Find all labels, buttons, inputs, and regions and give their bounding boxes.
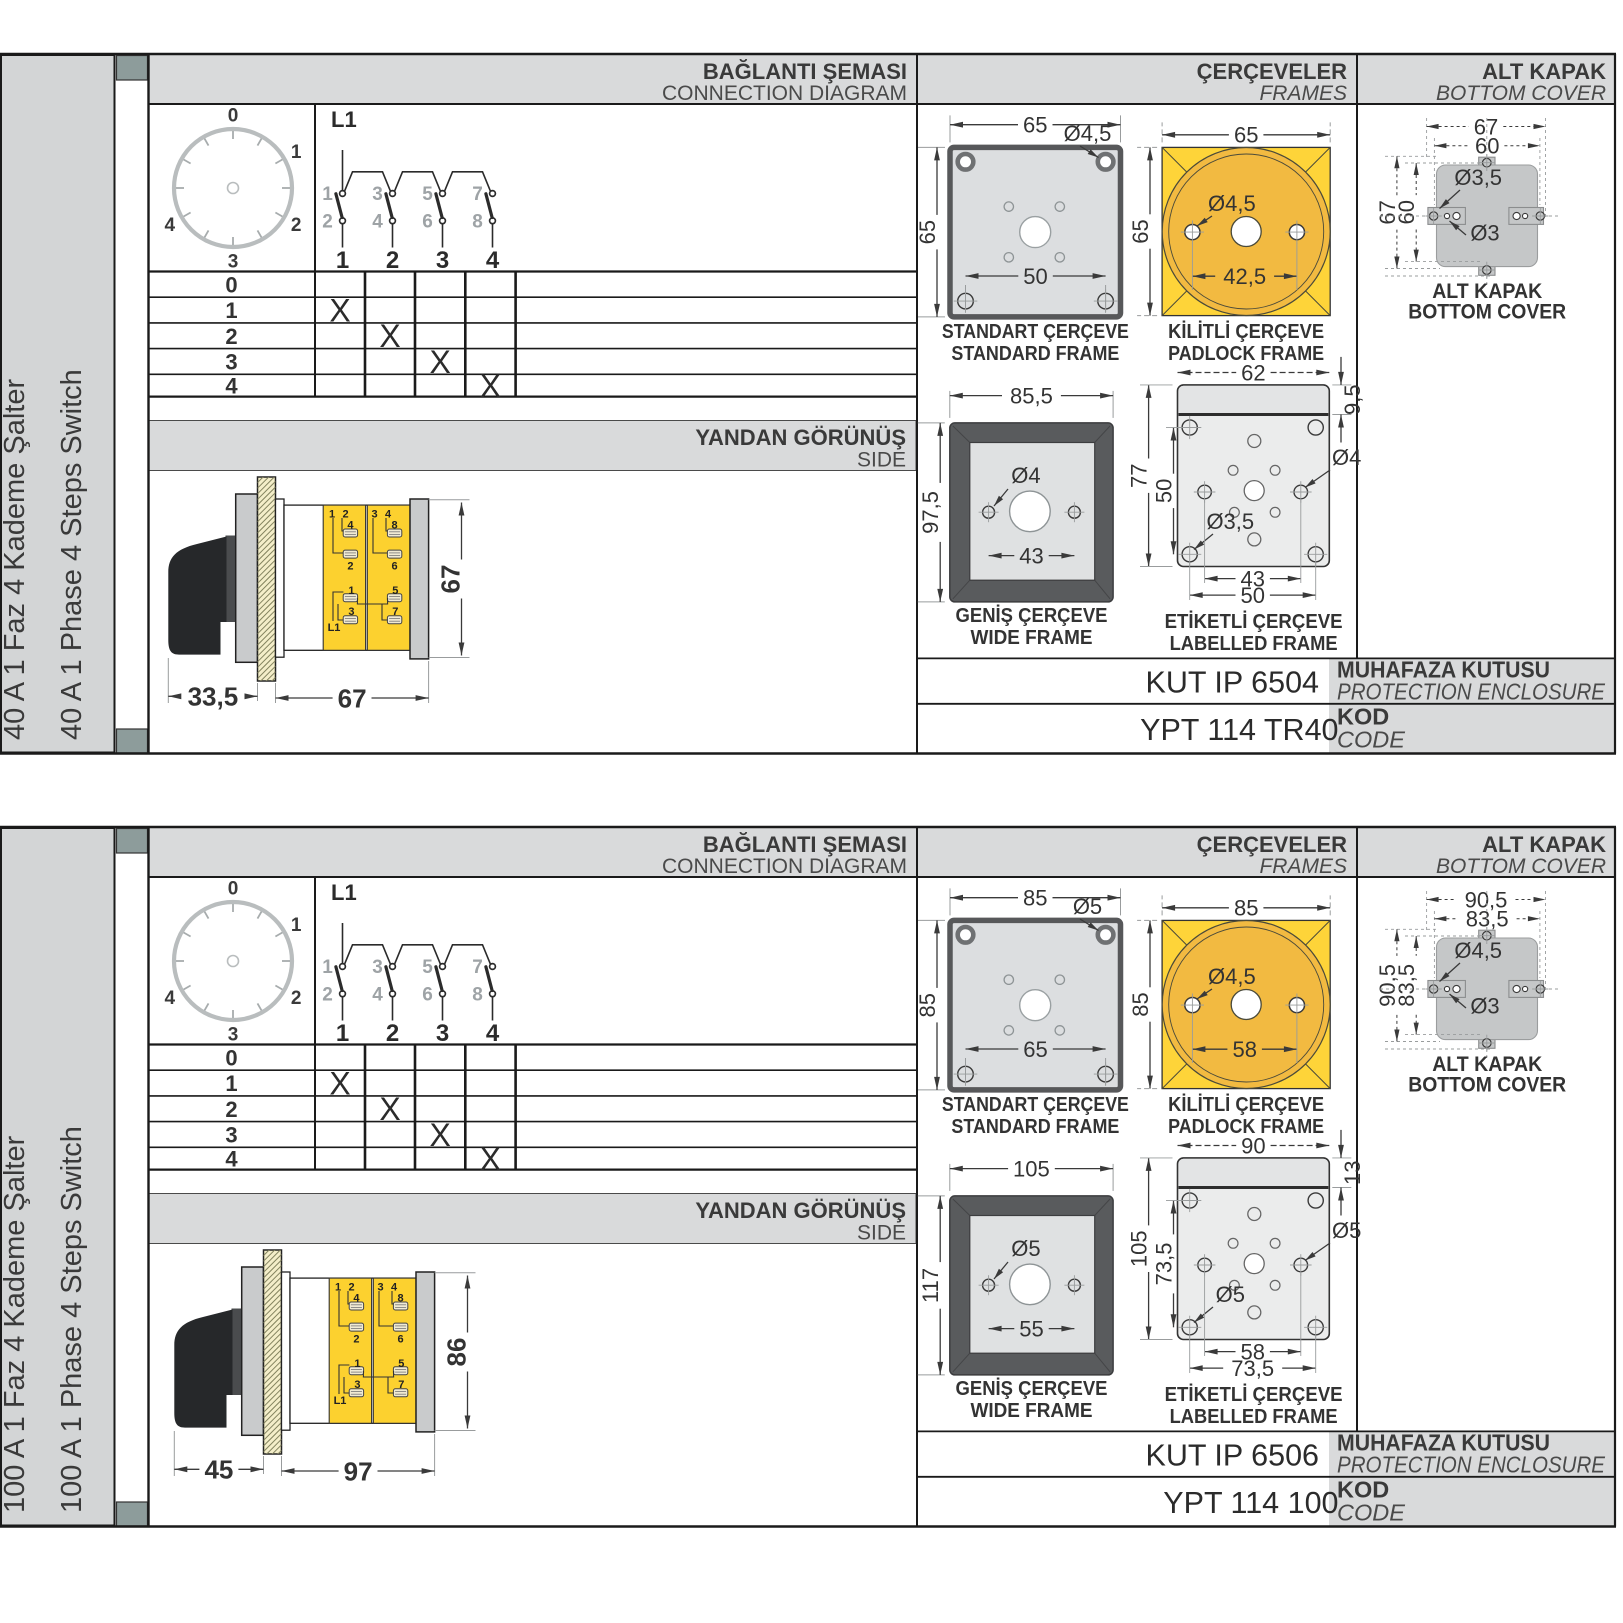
svg-text:Ø4,5: Ø4,5 [1208, 191, 1256, 216]
svg-text:1: 1 [348, 585, 354, 597]
svg-text:WIDE FRAME: WIDE FRAME [971, 627, 1093, 649]
svg-text:65: 65 [915, 220, 940, 244]
svg-text:Ø4: Ø4 [1011, 463, 1040, 488]
svg-text:FRAMES: FRAMES [1259, 855, 1347, 878]
svg-text:8: 8 [472, 212, 483, 233]
svg-text:55: 55 [1019, 1317, 1043, 1342]
svg-text:PROTECTION ENCLOSURE: PROTECTION ENCLOSURE [1337, 679, 1605, 705]
svg-text:L1: L1 [331, 107, 357, 132]
svg-text:85: 85 [1234, 896, 1258, 921]
svg-text:Ø5: Ø5 [1216, 1282, 1245, 1307]
svg-text:2: 2 [225, 1097, 237, 1122]
svg-text:5: 5 [398, 1358, 404, 1370]
svg-text:Ø5: Ø5 [1332, 1218, 1361, 1243]
svg-text:4: 4 [372, 212, 383, 233]
svg-text:X: X [480, 368, 501, 404]
svg-text:6: 6 [422, 212, 433, 233]
svg-text:3: 3 [436, 247, 449, 274]
svg-text:4: 4 [165, 988, 176, 1009]
svg-text:50: 50 [1023, 264, 1047, 289]
svg-text:4: 4 [347, 520, 354, 532]
svg-text:YANDAN GÖRÜNÜŞ: YANDAN GÖRÜNÜŞ [695, 425, 906, 450]
svg-text:3: 3 [371, 509, 377, 521]
svg-text:1: 1 [336, 247, 349, 274]
svg-text:1: 1 [322, 957, 333, 978]
svg-text:X: X [480, 1141, 501, 1177]
svg-text:58: 58 [1232, 1037, 1256, 1062]
svg-text:L1: L1 [331, 880, 357, 905]
svg-text:0: 0 [228, 879, 239, 900]
svg-text:KİLİTLİ ÇERÇEVE: KİLİTLİ ÇERÇEVE [1168, 1093, 1324, 1116]
svg-text:2: 2 [322, 212, 333, 233]
svg-text:65: 65 [1128, 219, 1153, 243]
svg-text:Ø3: Ø3 [1470, 221, 1499, 246]
svg-text:3: 3 [377, 1282, 383, 1294]
svg-text:ETİKETLİ ÇERÇEVE: ETİKETLİ ÇERÇEVE [1165, 610, 1343, 633]
svg-text:5: 5 [422, 957, 433, 978]
svg-text:5: 5 [422, 184, 433, 205]
svg-text:65: 65 [1023, 1037, 1047, 1062]
svg-text:4: 4 [353, 1293, 360, 1305]
svg-text:X: X [329, 1066, 350, 1102]
svg-text:KUT IP 6504: KUT IP 6504 [1145, 666, 1319, 700]
svg-text:BOTTOM COVER: BOTTOM COVER [1408, 1074, 1566, 1097]
svg-text:85: 85 [1023, 886, 1047, 911]
svg-text:4: 4 [225, 374, 238, 399]
svg-text:50: 50 [1152, 479, 1177, 503]
svg-text:SIDE: SIDE [857, 1222, 906, 1245]
svg-text:CONNECTION DIAGRAM: CONNECTION DIAGRAM [662, 855, 907, 878]
svg-text:YPT 114 TR40: YPT 114 TR40 [1140, 713, 1338, 747]
svg-text:SIDE: SIDE [857, 449, 906, 472]
svg-text:PROTECTION ENCLOSURE: PROTECTION ENCLOSURE [1337, 1452, 1605, 1478]
svg-text:X: X [379, 1091, 400, 1127]
svg-text:1: 1 [329, 509, 335, 521]
svg-text:1: 1 [225, 1071, 237, 1096]
svg-text:L1: L1 [328, 622, 341, 634]
svg-text:CODE: CODE [1337, 727, 1405, 753]
svg-text:67: 67 [338, 683, 367, 713]
svg-text:BOTTOM COVER: BOTTOM COVER [1436, 82, 1606, 105]
svg-text:3: 3 [225, 350, 237, 375]
svg-text:7: 7 [472, 957, 483, 978]
svg-text:LABELLED FRAME: LABELLED FRAME [1170, 633, 1338, 655]
svg-text:3: 3 [372, 184, 383, 205]
svg-text:33,5: 33,5 [188, 682, 239, 712]
svg-text:5: 5 [392, 585, 398, 597]
svg-text:50: 50 [1240, 583, 1264, 608]
svg-text:60: 60 [1394, 200, 1419, 224]
svg-text:X: X [430, 344, 451, 380]
svg-text:4: 4 [486, 247, 500, 274]
svg-text:0: 0 [225, 272, 237, 297]
svg-text:1: 1 [291, 142, 302, 163]
svg-text:90: 90 [1241, 1133, 1265, 1158]
svg-text:X: X [329, 293, 350, 329]
svg-text:86: 86 [442, 1338, 472, 1367]
svg-text:Ø5: Ø5 [1073, 894, 1102, 919]
svg-text:ALT KAPAK: ALT KAPAK [1482, 832, 1606, 857]
svg-text:105: 105 [1013, 1157, 1050, 1182]
svg-text:KİLİTLİ ÇERÇEVE: KİLİTLİ ÇERÇEVE [1168, 320, 1324, 343]
svg-text:8: 8 [398, 1293, 404, 1305]
svg-text:6: 6 [398, 1334, 404, 1346]
svg-text:STANDART ÇERÇEVE: STANDART ÇERÇEVE [942, 1094, 1129, 1116]
svg-text:6: 6 [422, 985, 433, 1006]
svg-text:GENİŞ ÇERÇEVE: GENİŞ ÇERÇEVE [956, 604, 1108, 627]
svg-text:BAĞLANTI ŞEMASI: BAĞLANTI ŞEMASI [703, 832, 907, 857]
svg-text:1: 1 [225, 298, 237, 323]
svg-text:7: 7 [392, 606, 398, 618]
svg-text:BAĞLANTI ŞEMASI: BAĞLANTI ŞEMASI [703, 59, 907, 84]
svg-text:100 A 1 Phase 4 Steps Switch: 100 A 1 Phase 4 Steps Switch [56, 1126, 88, 1513]
svg-text:3: 3 [228, 252, 239, 273]
svg-text:73,5: 73,5 [1152, 1242, 1177, 1285]
svg-text:105: 105 [1127, 1230, 1152, 1267]
svg-text:40 A 1 Faz 4 Kademe Şalter: 40 A 1 Faz 4 Kademe Şalter [0, 379, 31, 740]
svg-text:2: 2 [386, 247, 399, 274]
svg-text:3: 3 [225, 1123, 237, 1148]
svg-text:43: 43 [1019, 544, 1043, 569]
svg-text:97,5: 97,5 [918, 491, 943, 534]
svg-text:BOTTOM COVER: BOTTOM COVER [1436, 855, 1606, 878]
svg-text:4: 4 [372, 985, 383, 1006]
svg-text:83,5: 83,5 [1394, 964, 1419, 1007]
svg-text:85,5: 85,5 [1010, 384, 1053, 409]
svg-text:2: 2 [322, 985, 333, 1006]
svg-text:Ø3: Ø3 [1470, 994, 1499, 1019]
svg-text:100 A 1 Faz 4 Kademe Şalter: 100 A 1 Faz 4 Kademe Şalter [0, 1135, 31, 1513]
svg-text:85: 85 [915, 993, 940, 1017]
svg-text:YANDAN GÖRÜNÜŞ: YANDAN GÖRÜNÜŞ [695, 1198, 906, 1223]
svg-text:KUT IP 6506: KUT IP 6506 [1145, 1439, 1319, 1473]
svg-text:3: 3 [372, 957, 383, 978]
svg-text:4: 4 [165, 215, 176, 236]
svg-text:WIDE FRAME: WIDE FRAME [971, 1400, 1093, 1422]
svg-text:Ø4,5: Ø4,5 [1064, 121, 1112, 146]
svg-text:45: 45 [204, 1455, 233, 1485]
svg-text:Ø4,5: Ø4,5 [1208, 964, 1256, 989]
svg-text:Ø5: Ø5 [1011, 1236, 1040, 1261]
svg-text:13: 13 [1340, 1160, 1365, 1184]
svg-text:ÇERÇEVELER: ÇERÇEVELER [1197, 59, 1347, 84]
svg-text:1: 1 [354, 1358, 360, 1370]
svg-text:BOTTOM COVER: BOTTOM COVER [1408, 301, 1566, 324]
svg-text:LABELLED FRAME: LABELLED FRAME [1170, 1406, 1338, 1428]
svg-text:73,5: 73,5 [1231, 1356, 1274, 1381]
svg-text:6: 6 [392, 561, 398, 573]
svg-text:9,5: 9,5 [1340, 384, 1365, 415]
svg-text:X: X [379, 318, 400, 354]
svg-text:65: 65 [1023, 113, 1047, 138]
svg-text:2: 2 [353, 1334, 359, 1346]
svg-text:1: 1 [322, 184, 333, 205]
svg-text:4: 4 [225, 1147, 238, 1172]
svg-text:L1: L1 [334, 1395, 347, 1407]
svg-text:40 A 1 Phase 4 Steps Switch: 40 A 1 Phase 4 Steps Switch [56, 369, 88, 740]
svg-text:3: 3 [436, 1020, 449, 1047]
svg-text:ÇERÇEVELER: ÇERÇEVELER [1197, 832, 1347, 857]
svg-text:X: X [430, 1117, 451, 1153]
svg-text:0: 0 [225, 1045, 237, 1070]
svg-text:1: 1 [335, 1282, 341, 1294]
svg-text:42,5: 42,5 [1223, 264, 1266, 289]
svg-text:2: 2 [347, 561, 353, 573]
svg-text:8: 8 [392, 520, 398, 532]
svg-text:Ø3,5: Ø3,5 [1206, 509, 1254, 534]
svg-text:85: 85 [1128, 992, 1153, 1016]
svg-text:2: 2 [291, 215, 302, 236]
svg-text:Ø4,5: Ø4,5 [1454, 938, 1502, 963]
svg-text:Ø3,5: Ø3,5 [1454, 165, 1502, 190]
svg-text:ALT KAPAK: ALT KAPAK [1482, 59, 1606, 84]
svg-text:STANDARD FRAME: STANDARD FRAME [951, 343, 1119, 365]
svg-text:97: 97 [344, 1456, 373, 1486]
svg-text:1: 1 [291, 915, 302, 936]
svg-text:GENİŞ ÇERÇEVE: GENİŞ ÇERÇEVE [956, 1377, 1108, 1400]
svg-text:3: 3 [354, 1379, 360, 1391]
svg-text:2: 2 [225, 324, 237, 349]
svg-text:STANDART ÇERÇEVE: STANDART ÇERÇEVE [942, 321, 1129, 343]
svg-text:4: 4 [486, 1020, 500, 1047]
svg-text:77: 77 [1127, 463, 1152, 487]
svg-text:Ø4: Ø4 [1332, 445, 1361, 470]
svg-text:7: 7 [398, 1379, 404, 1391]
svg-text:1: 1 [336, 1020, 349, 1047]
svg-text:3: 3 [228, 1025, 239, 1046]
svg-text:YPT 114 100: YPT 114 100 [1163, 1486, 1338, 1520]
svg-text:3: 3 [348, 606, 354, 618]
svg-text:2: 2 [291, 988, 302, 1009]
svg-text:65: 65 [1234, 123, 1258, 148]
svg-text:FRAMES: FRAMES [1259, 82, 1347, 105]
svg-text:7: 7 [472, 184, 483, 205]
svg-text:STANDARD FRAME: STANDARD FRAME [951, 1116, 1119, 1138]
svg-text:2: 2 [386, 1020, 399, 1047]
svg-text:67: 67 [436, 565, 466, 594]
svg-text:ETİKETLİ ÇERÇEVE: ETİKETLİ ÇERÇEVE [1165, 1383, 1343, 1406]
svg-text:CODE: CODE [1337, 1500, 1405, 1526]
svg-text:8: 8 [472, 985, 483, 1006]
svg-text:62: 62 [1241, 360, 1265, 385]
svg-text:117: 117 [918, 1268, 943, 1303]
svg-text:CONNECTION DIAGRAM: CONNECTION DIAGRAM [662, 82, 907, 105]
svg-text:0: 0 [228, 106, 239, 127]
